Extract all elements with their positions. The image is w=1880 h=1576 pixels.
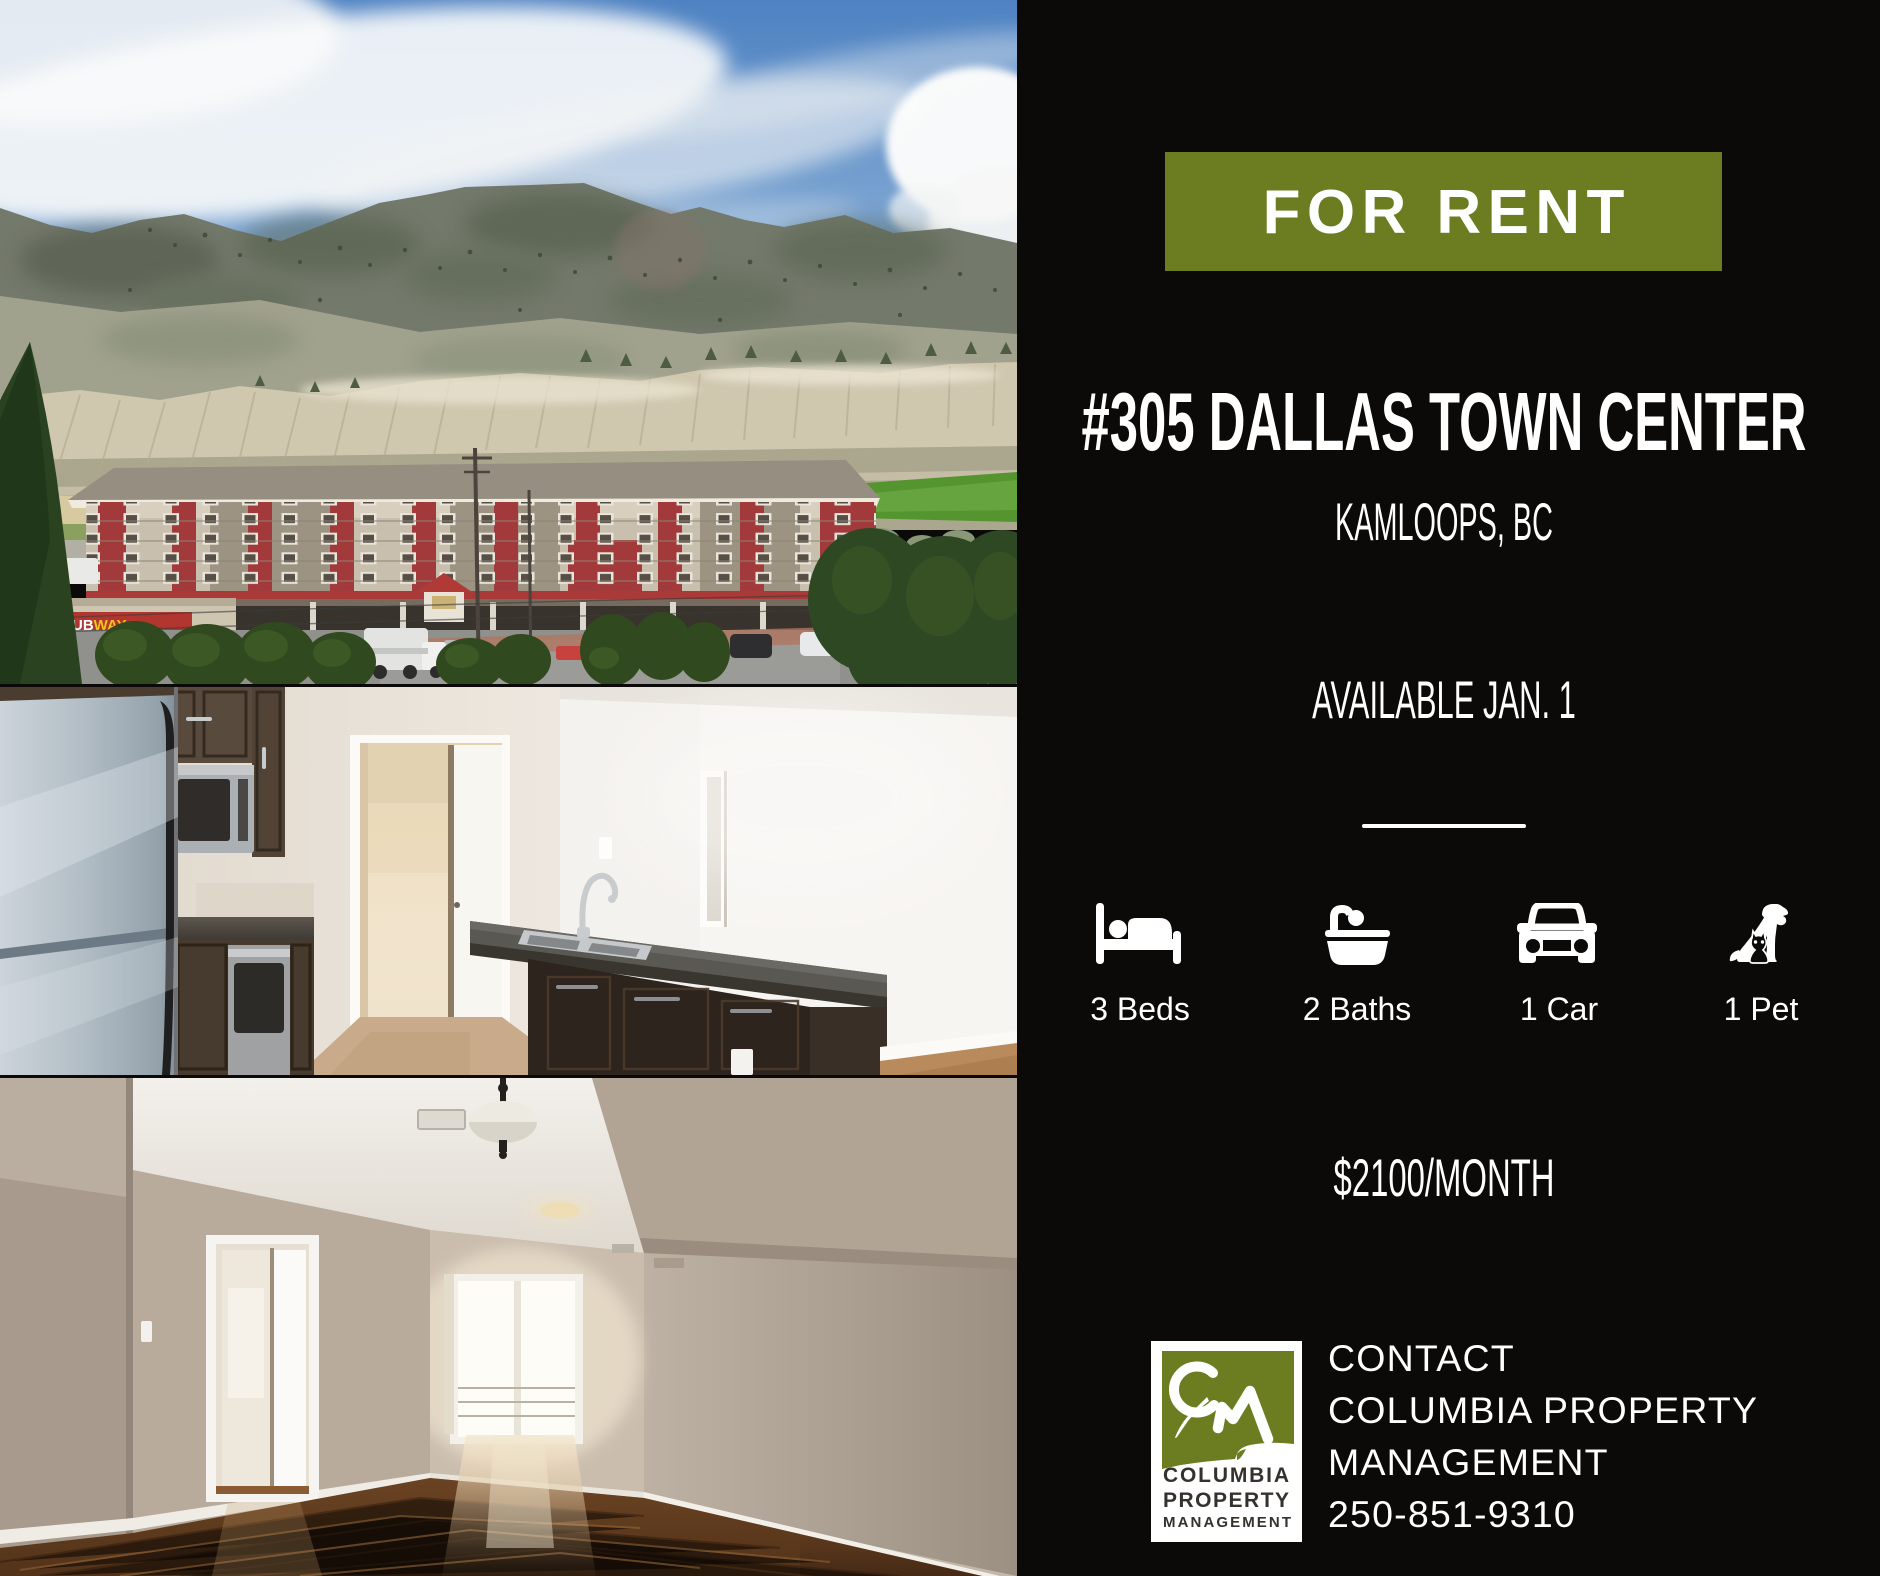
svg-text:PROPERTY: PROPERTY [1163,1489,1291,1512]
svg-text:MANAGEMENT: MANAGEMENT [1163,1514,1291,1531]
svg-text:COLUMBIA: COLUMBIA [1163,1464,1291,1487]
